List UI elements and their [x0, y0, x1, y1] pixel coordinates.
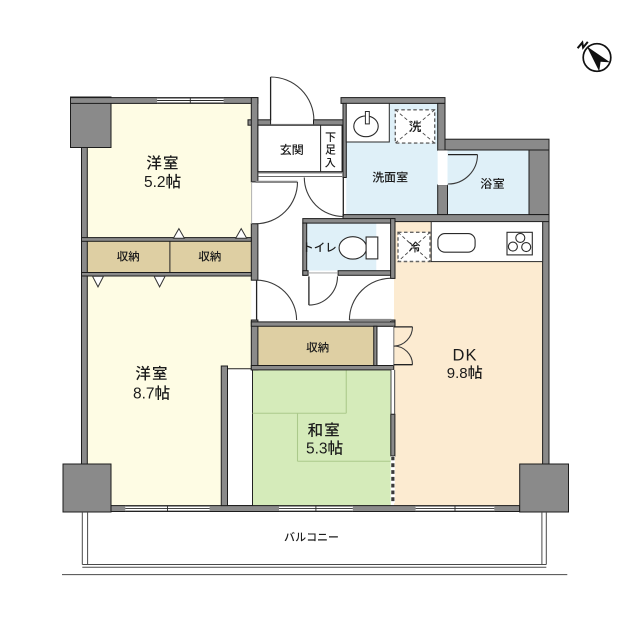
- svg-text:トイレ: トイレ: [302, 239, 337, 255]
- svg-text:収納: 収納: [199, 248, 222, 264]
- svg-text:バルコニー: バルコニー: [284, 529, 339, 545]
- svg-text:入: 入: [325, 155, 336, 171]
- svg-text:冷: 冷: [408, 240, 420, 256]
- svg-text:玄関: 玄関: [280, 141, 304, 158]
- svg-text:収納: 収納: [117, 248, 140, 264]
- svg-text:収納: 収納: [306, 340, 329, 356]
- svg-text:洗面室: 洗面室: [372, 169, 408, 186]
- svg-text:5.2帖: 5.2帖: [144, 170, 182, 192]
- svg-text:5.3帖: 5.3帖: [306, 437, 344, 459]
- svg-text:9.8帖: 9.8帖: [447, 362, 483, 383]
- svg-text:8.7帖: 8.7帖: [133, 382, 171, 404]
- svg-text:洗: 洗: [409, 116, 422, 135]
- svg-text:浴室: 浴室: [480, 175, 504, 192]
